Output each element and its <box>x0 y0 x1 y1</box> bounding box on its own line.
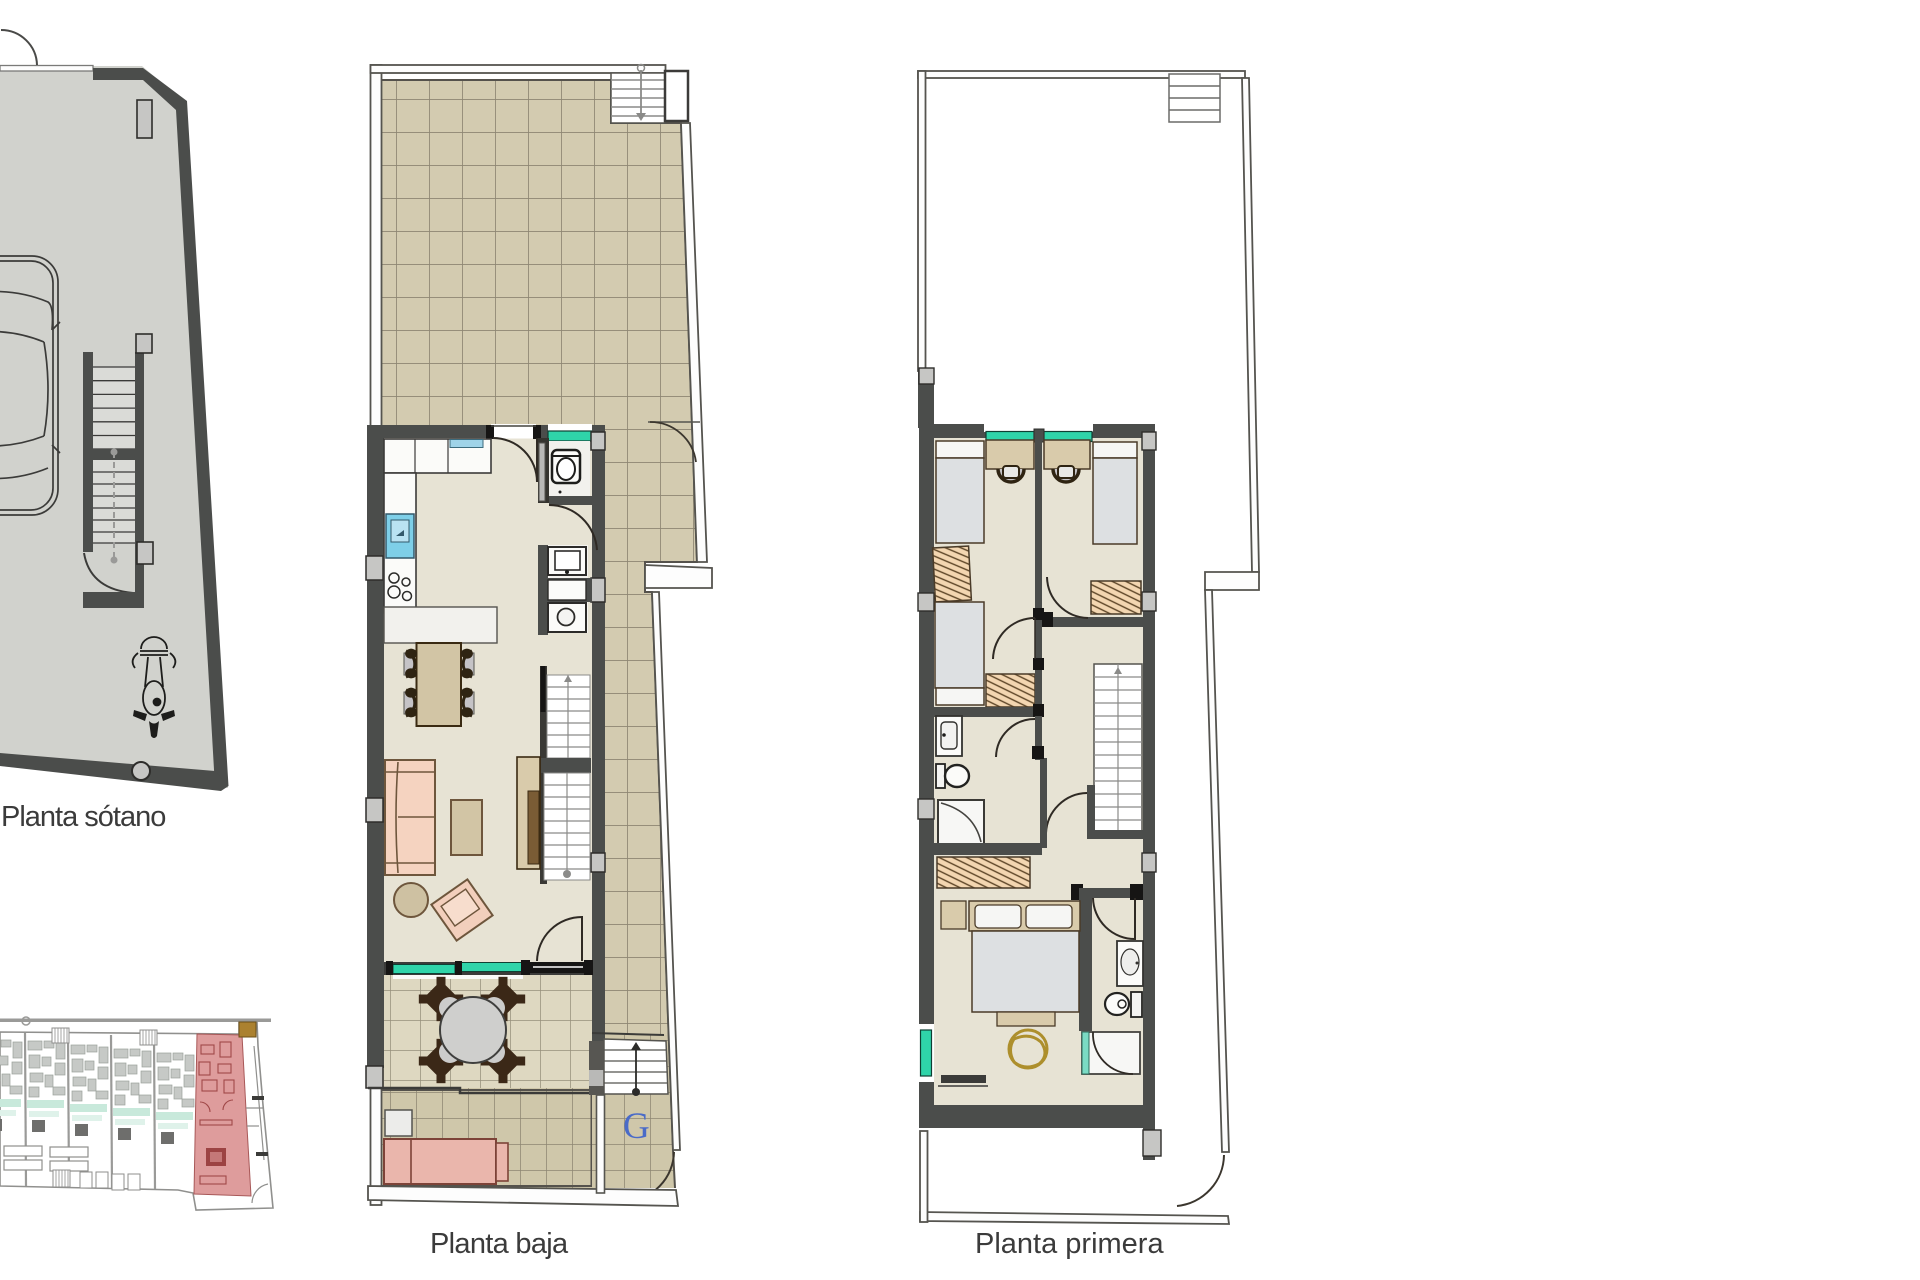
svg-text:Planta baja: Planta baja <box>430 1228 569 1260</box>
svg-text:G: G <box>623 1106 650 1147</box>
svg-text:Planta sótano: Planta sótano <box>1 801 165 833</box>
svg-text:Planta primera: Planta primera <box>975 1228 1164 1260</box>
